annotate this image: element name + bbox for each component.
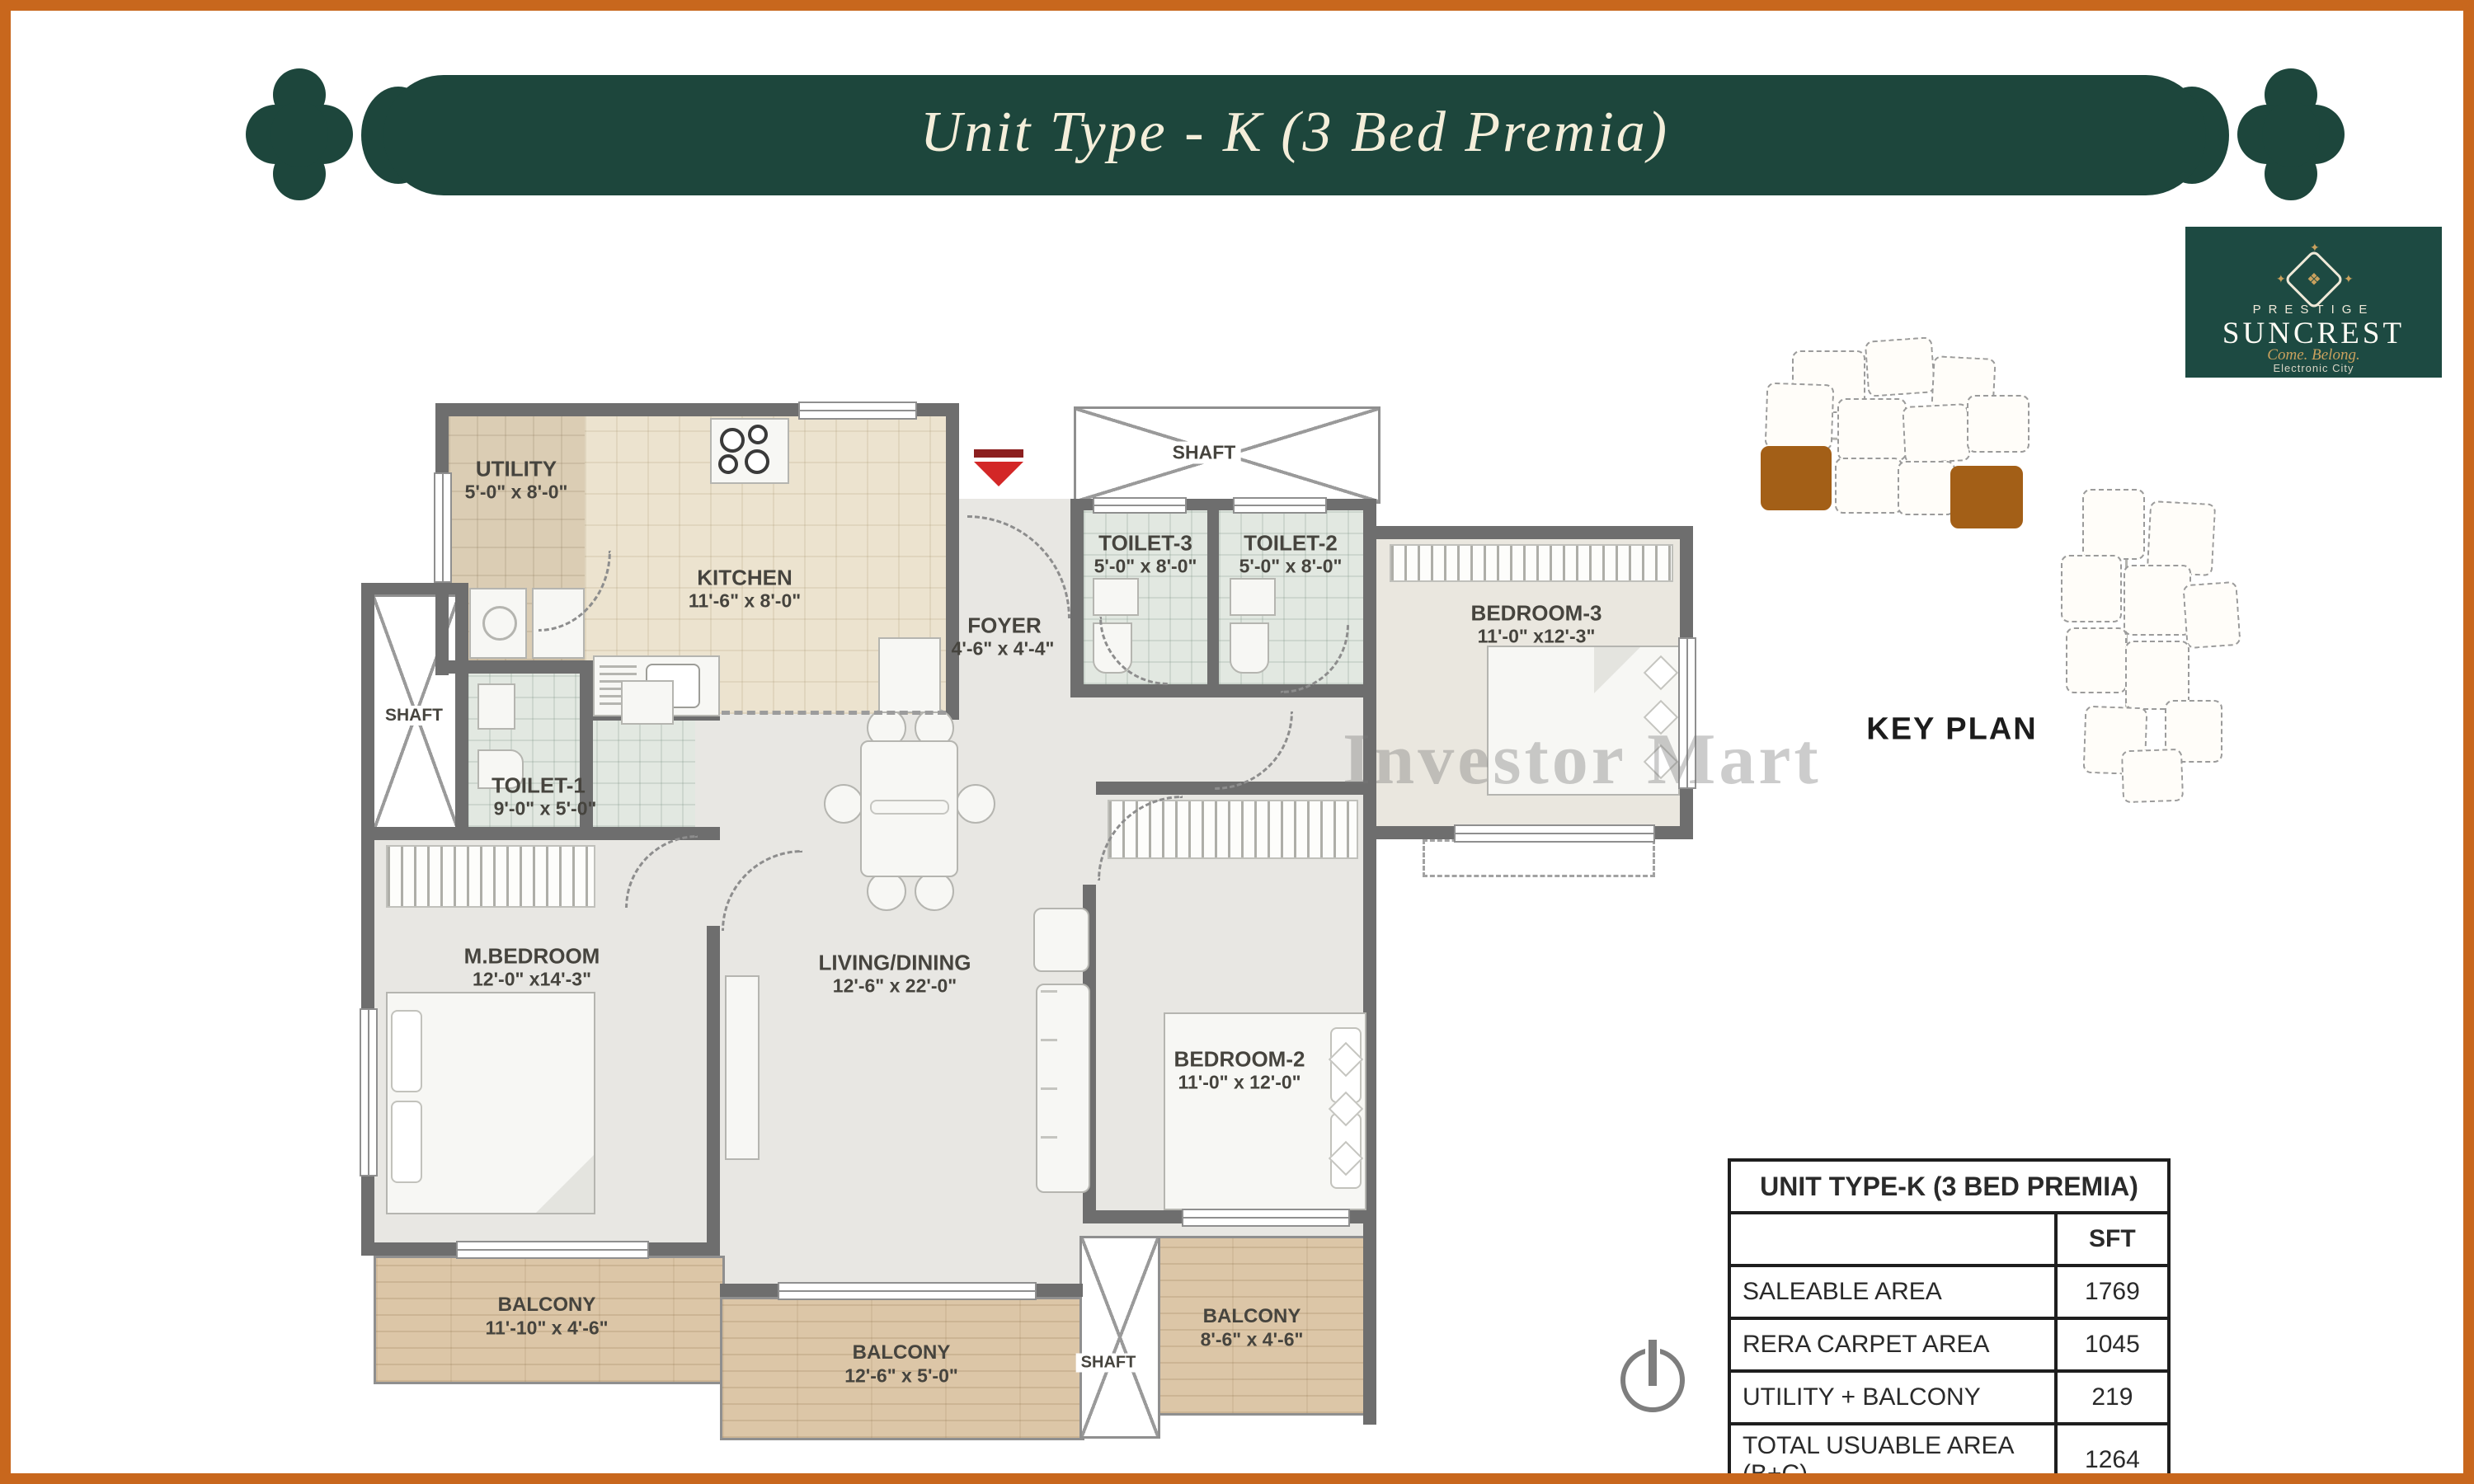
north-indicator-icon [1620,1348,1685,1412]
logo-medallion-icon: ❖ [2284,249,2345,310]
banner-bar: Unit Type - K (3 Bed Premia) [383,75,2206,195]
logo-brand: PRESTIGE [2185,303,2442,317]
star-icon: ✦ [2310,242,2320,253]
logo-location: Electronic City [2185,362,2442,374]
room-label-kitchen: KITCHEN [697,566,793,591]
room-label-bedroom2: BEDROOM-2 [1174,1047,1305,1073]
table-row: RERA CARPET AREA 1045 [1729,1318,2169,1371]
key-plan-highlighted-block [1950,466,2023,528]
floor-plan-flyer: Unit Type - K (3 Bed Premia) ❖ ✦ ✦ ✦ PRE… [0,0,2474,1484]
entry-arrow-icon [974,449,1023,458]
terrace-dashed-outline [1423,839,1655,877]
washing-machine [469,588,527,659]
room-label-balcony1: BALCONY [498,1294,596,1317]
wardrobe [1390,544,1673,582]
area-table-title: UNIT TYPE-K (3 BED PREMIA) [1729,1160,2169,1213]
room-label-balcony3: BALCONY [1203,1305,1301,1328]
shaft-label-bottom: SHAFT [1076,1354,1141,1373]
key-plan-label: KEY PLAN [1866,712,2037,748]
room-label-toilet1: TOILET-1 [492,773,586,799]
star-icon: ✦ [2344,273,2354,284]
counter [878,637,941,713]
bed-2 [1164,1012,1366,1210]
page-title: Unit Type - K (3 Bed Premia) [920,100,1669,166]
room-label-foyer: FOYER [967,613,1042,639]
dining-table [860,740,958,877]
banner-ornament-right [2237,68,2345,200]
table-row: SALEABLE AREA 1769 [1729,1266,2169,1318]
room-label-living: LIVING/DINING [819,951,971,976]
brand-logo: ❖ ✦ ✦ ✦ PRESTIGE SUNCREST Come. Belong. … [2185,227,2442,378]
banner-ornament-left [246,68,353,200]
room-label-balcony2: BALCONY [853,1341,951,1364]
area-table: UNIT TYPE-K (3 BED PREMIA) SFT SALEABLE … [1728,1158,2171,1484]
stove [710,418,789,484]
star-icon: ✦ [2276,273,2286,284]
table-row: TOTAL USUABLE AREA (B+C) 1264 [1729,1424,2169,1484]
entry-arrow-icon [974,462,1023,486]
sofa [1036,984,1090,1193]
armchair [1033,908,1089,972]
key-plan-highlighted-block [1761,446,1832,510]
room-label-toilet3: TOILET-3 [1098,531,1192,556]
shaft-label-top: SHAFT [1168,442,1241,464]
tv-unit [725,975,760,1160]
bed-3 [1487,646,1680,796]
shaft-bottom [1079,1236,1160,1439]
bed-master [386,992,595,1214]
wardrobe [386,845,595,908]
area-table-unit-header: SFT [2056,1213,2169,1266]
room-label-mbedroom: M.BEDROOM [464,944,600,970]
table-row: UTILITY + BALCONY 219 [1729,1371,2169,1424]
shaft-label-left: SHAFT [380,706,448,726]
room-label-bedroom3: BEDROOM-3 [1471,601,1602,627]
room-label-utility: UTILITY [476,457,557,482]
room-label-toilet2: TOILET-2 [1244,531,1338,556]
